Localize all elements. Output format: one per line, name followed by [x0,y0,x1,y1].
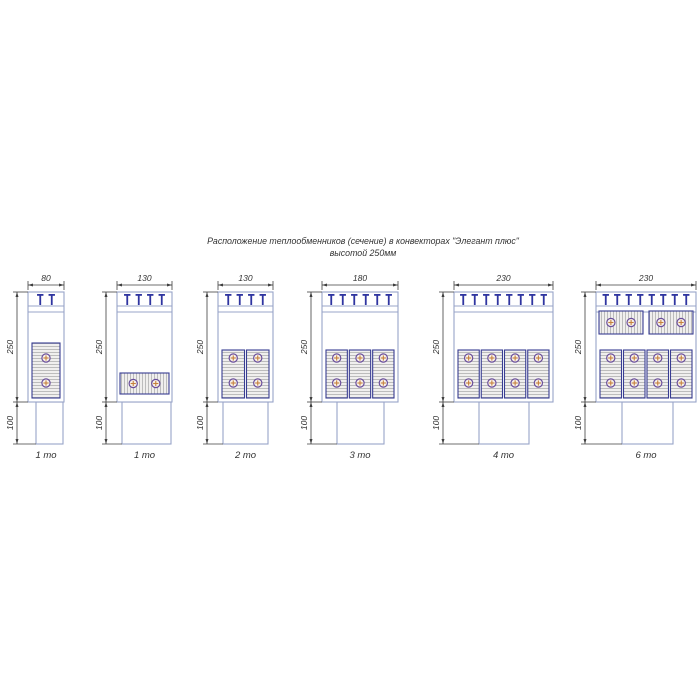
dimension-arrow [584,439,587,444]
dimension-arrow [322,284,327,287]
mounting-clip-stem [605,294,607,305]
mounting-clip-stem [353,294,355,305]
dimension-arrow [105,292,108,297]
mounting-clip-stem [616,294,618,305]
dimension-arrow [167,284,172,287]
dimension-arrow [59,284,64,287]
heat-exchanger [32,343,60,398]
diagram-count-label: 1 то [35,450,56,461]
mounting-clip-stem [138,294,140,305]
floor-duct [122,402,171,444]
dimension-arrow [442,397,445,402]
heat-exchanger [120,373,169,394]
mounting-clip-stem [651,294,653,305]
dimension-arrow [442,439,445,444]
mounting-clip-stem [330,294,332,305]
diagram-count-label: 3 то [349,450,370,461]
convector-cross-sections: 802501001 то1302501001 то1302501002 то18… [0,0,700,700]
dimension-arrow [310,292,313,297]
mounting-clip-stem [365,294,367,305]
dimension-arrow [105,439,108,444]
dimension-height-label: 250 [431,340,441,355]
dimension-duct-label: 100 [5,416,15,430]
dimension-height-label: 250 [5,340,15,355]
mounting-clip-stem [639,294,641,305]
dimension-width-label: 230 [495,273,510,283]
mounting-clip-stem [376,294,378,305]
floor-duct [36,402,63,444]
mounting-clip-stem [628,294,630,305]
diagram-count-label: 4 то [493,450,514,461]
dimension-width-label: 180 [353,273,367,283]
mounting-clip-stem [149,294,151,305]
convector-diagram-3: 1302501002 то [195,273,273,461]
mounting-clip-stem [662,294,664,305]
mounting-clip-stem [250,294,252,305]
dimension-duct-label: 100 [431,416,441,430]
dimension-arrow [16,402,19,407]
mounting-clip-stem [508,294,510,305]
mounting-clip-stem [239,294,241,305]
diagram-count-label: 6 то [635,450,656,461]
mounting-clip-stem [262,294,264,305]
dimension-width-label: 80 [41,273,51,283]
mounting-clip-stem [674,294,676,305]
dimension-arrow [454,284,459,287]
dimension-arrow [584,292,587,297]
heat-exchanger [649,311,693,334]
mounting-clip-stem [685,294,687,305]
dimension-arrow [206,292,209,297]
dimension-arrow [105,402,108,407]
floor-duct [337,402,384,444]
dimension-arrow [442,402,445,407]
dimension-arrow [691,284,696,287]
dimension-width-label: 130 [238,273,252,283]
dimension-arrow [16,397,19,402]
dimension-arrow [268,284,273,287]
dimension-width-label: 230 [638,273,653,283]
dimension-height-label: 250 [195,340,205,355]
dimension-arrow [584,402,587,407]
dimension-arrow [310,397,313,402]
dimension-arrow [105,397,108,402]
convector-diagram-4: 1802501003 то [299,273,398,461]
dimension-arrow [28,284,33,287]
diagram-count-label: 1 то [134,450,155,461]
mounting-clip-stem [543,294,545,305]
mounting-clip-stem [388,294,390,305]
mounting-clip-stem [497,294,499,305]
mounting-clip-stem [51,294,53,305]
mounting-clip-stem [39,294,41,305]
mounting-clip-stem [485,294,487,305]
dimension-arrow [218,284,223,287]
dimension-arrow [393,284,398,287]
floor-duct [479,402,529,444]
dimension-arrow [310,439,313,444]
dimension-width-label: 130 [137,273,151,283]
convector-diagram-6: 2302501006 то [573,273,696,461]
dimension-duct-label: 100 [94,416,104,430]
dimension-arrow [310,402,313,407]
mounting-clip-stem [520,294,522,305]
dimension-arrow [16,292,19,297]
convector-diagram-5: 2302501004 то [431,273,553,461]
convector-diagram-1: 802501001 то [5,273,64,461]
dimension-arrow [117,284,122,287]
dimension-height-label: 250 [299,340,309,355]
dimension-arrow [548,284,553,287]
dimension-duct-label: 100 [195,416,205,430]
dimension-height-label: 250 [573,340,583,355]
drawing-sheet: Расположение теплообменников (сечение) в… [0,0,700,700]
dimension-arrow [596,284,601,287]
floor-duct [223,402,268,444]
mounting-clip-stem [342,294,344,305]
dimension-arrow [206,439,209,444]
convector-diagram-2: 1302501001 то [94,273,172,461]
dimension-arrow [442,292,445,297]
dimension-duct-label: 100 [299,416,309,430]
diagram-count-label: 2 то [234,450,256,461]
dimension-height-label: 250 [94,340,104,355]
mounting-clip-stem [161,294,163,305]
mounting-clip-stem [531,294,533,305]
dimension-arrow [584,397,587,402]
dimension-arrow [206,402,209,407]
mounting-clip-stem [126,294,128,305]
heat-exchanger [599,311,643,334]
dimension-arrow [16,439,19,444]
dimension-arrow [206,397,209,402]
dimension-duct-label: 100 [573,416,583,430]
mounting-clip-stem [474,294,476,305]
floor-duct [622,402,673,444]
mounting-clip-stem [227,294,229,305]
mounting-clip-stem [462,294,464,305]
